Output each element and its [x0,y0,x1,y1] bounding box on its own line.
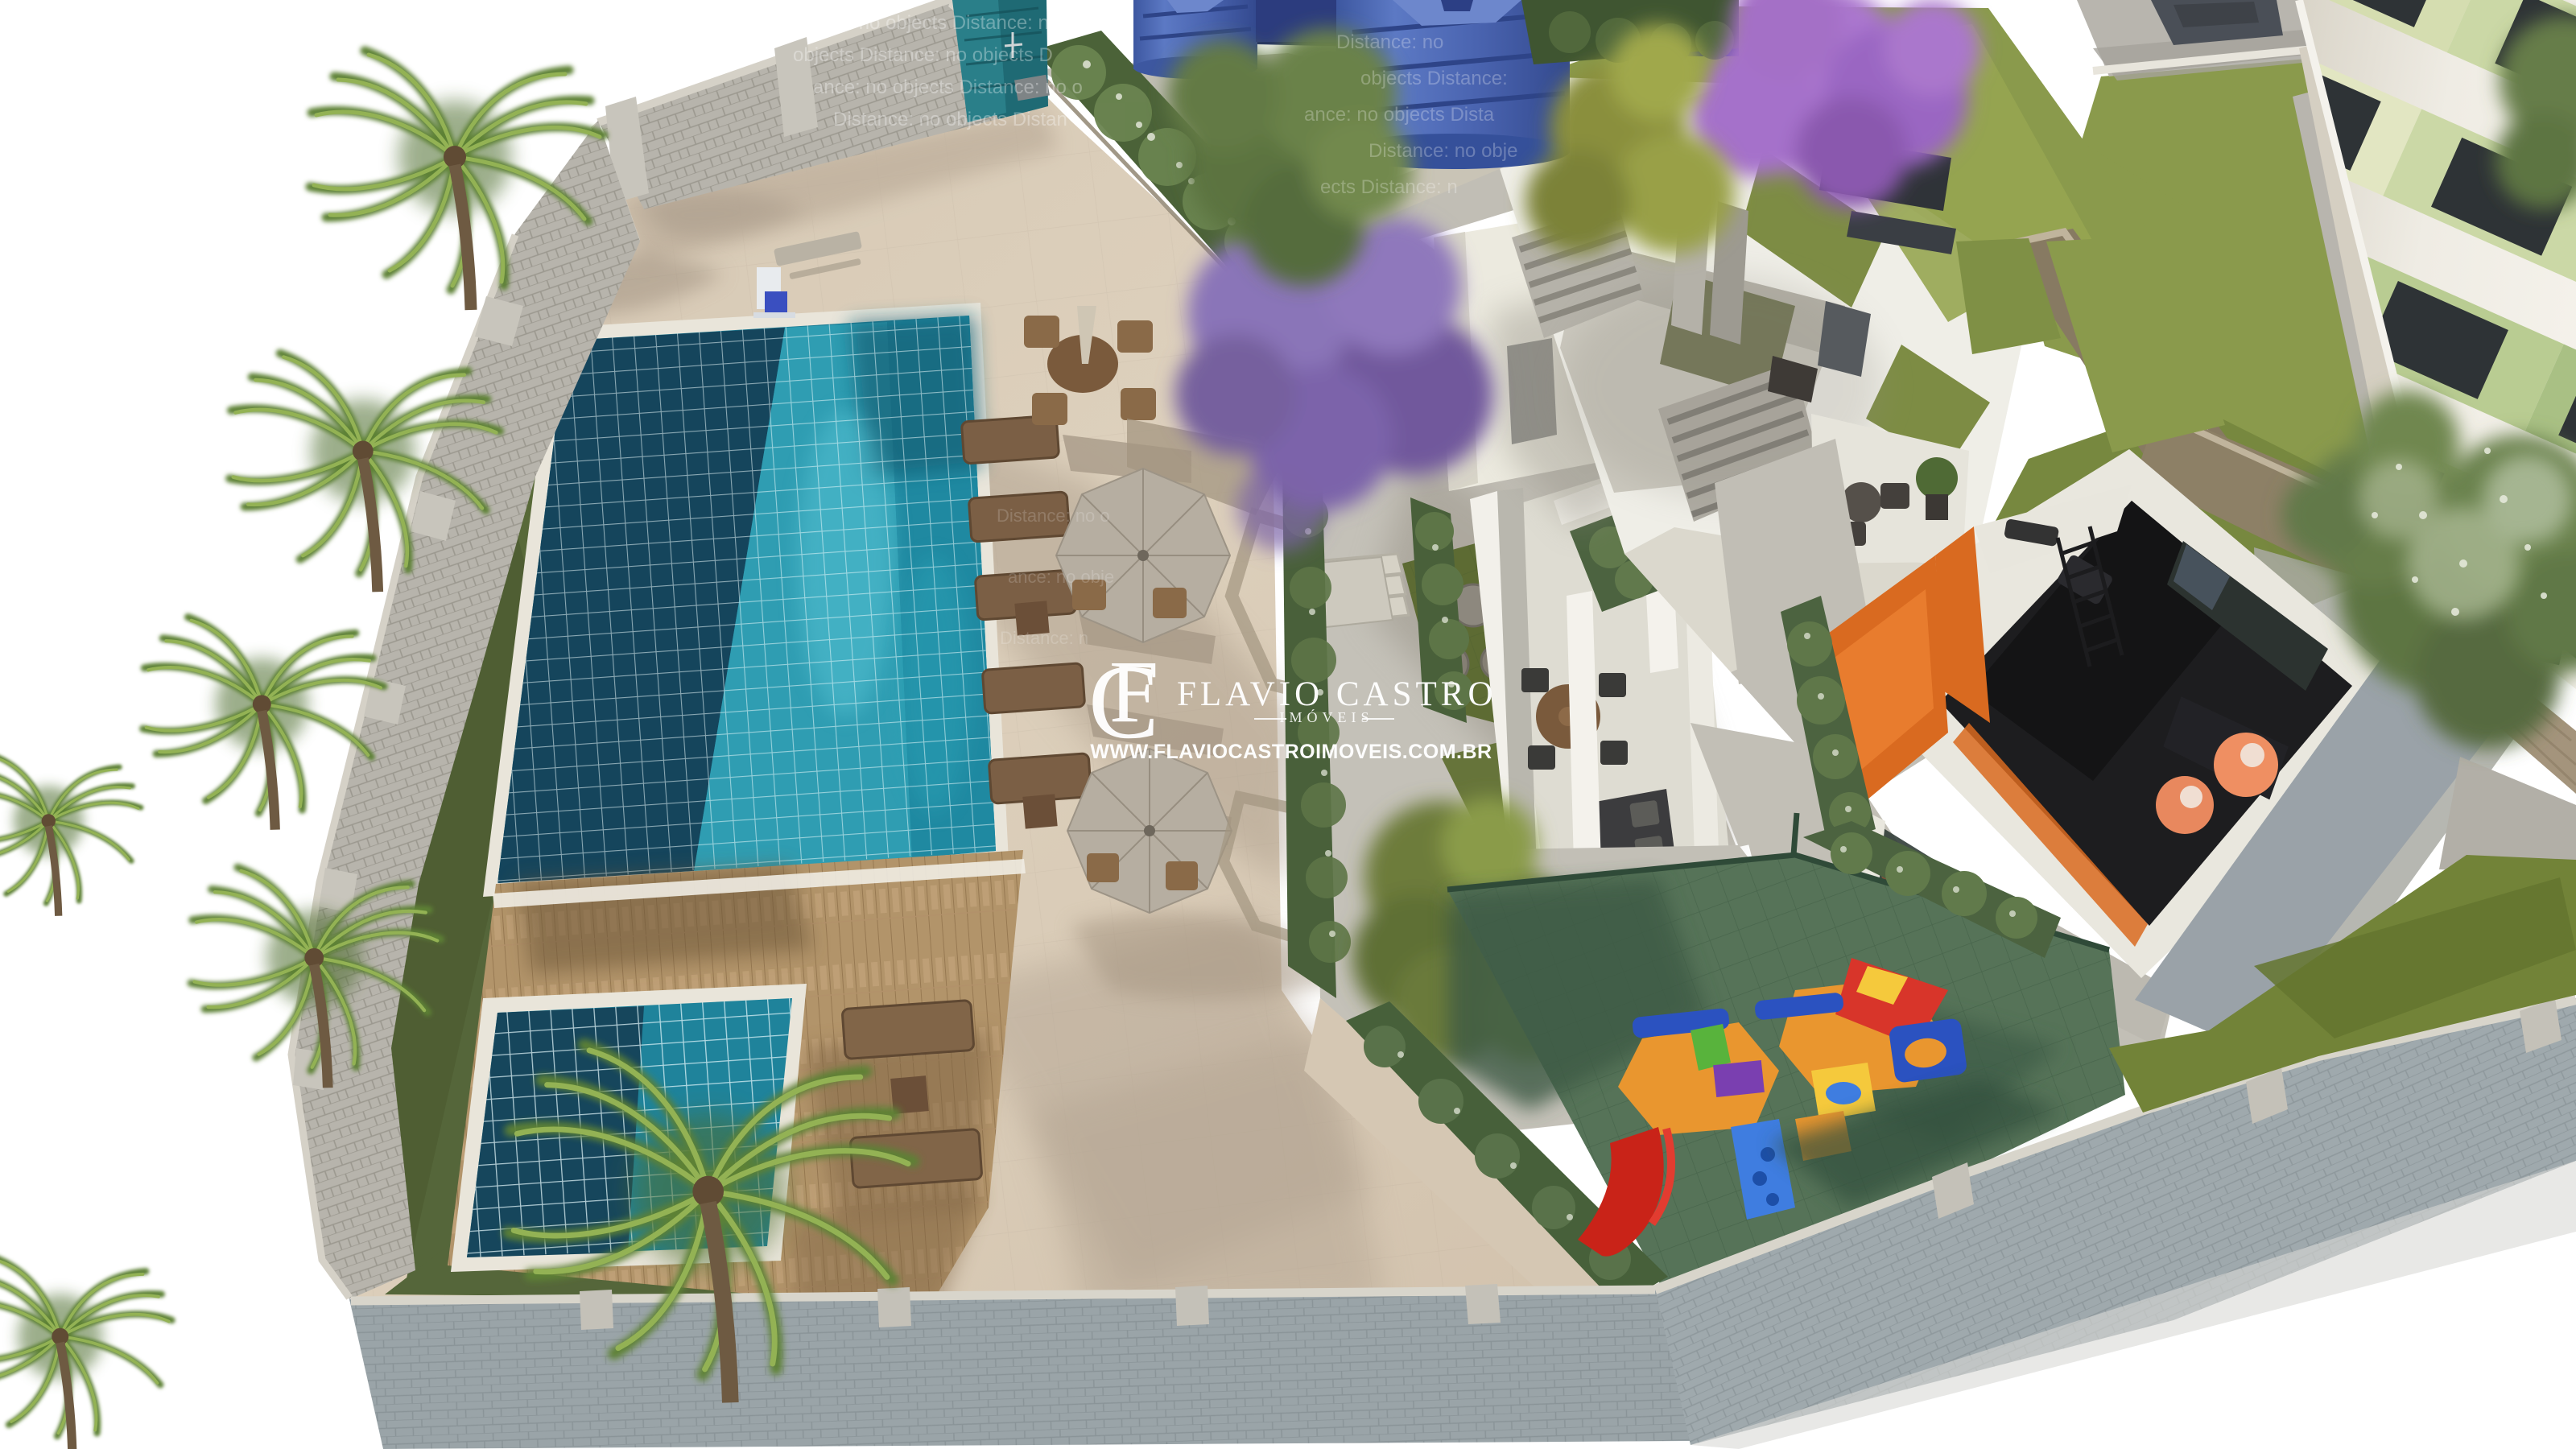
svg-text:Distance: no objects Distanc: Distance: no objects Distance: n [773,12,1049,34]
svg-text:FLAVIO CASTRO: FLAVIO CASTRO [1177,675,1497,713]
svg-text:Distance: no: Distance: no [1336,31,1443,53]
svg-text:ance: no objects Distance: n: ance: no objects Distance: no o [813,76,1083,98]
svg-text:IMÓVEIS: IMÓVEIS [1280,708,1374,725]
svg-text:Distance: n: Distance: n [1000,628,1088,648]
svg-text:Distance: no objects Distan: Distance: no objects Distan [833,109,1067,130]
svg-text:ance: no objects Dista: ance: no objects Dista [1304,104,1495,126]
svg-text:F: F [1109,642,1158,741]
svg-text:Distance: no obje: Distance: no obje [1368,140,1517,162]
svg-text:ects Distance: n: ects Distance: n [1320,176,1458,198]
svg-text:Distance: no o: Distance: no o [997,506,1110,526]
svg-text:WWW.FLAVIOCASTROIMOVEIS.COM.BR: WWW.FLAVIOCASTROIMOVEIS.COM.BR [1090,741,1492,763]
svg-text:objects Distance:: objects Distance: [1360,68,1508,89]
svg-text:objects Distance: no objects: objects Distance: no objects D [793,44,1053,66]
svg-text:ance: no obje: ance: no obje [1008,567,1114,587]
